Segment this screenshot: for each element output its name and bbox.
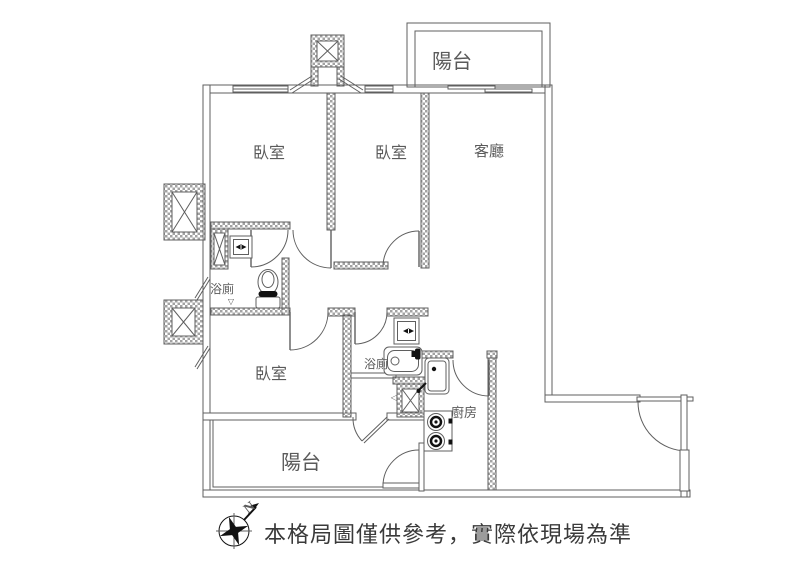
door-bedroom3 [290, 312, 328, 350]
shaft-bath1 [211, 229, 228, 269]
room-label-bedroom3: 臥室 [255, 365, 287, 383]
door-kitchen [453, 360, 489, 396]
drain-marker-bath1: ▽ [228, 297, 235, 306]
door-bath2 [355, 312, 387, 344]
door-balcony-kitchen [383, 450, 419, 488]
room-label-balcony-top: 陽台 [432, 50, 472, 73]
room-label-living: 客廳 [474, 142, 504, 160]
north-compass: N [216, 499, 259, 549]
room-label-bath2: 浴廁 [364, 356, 388, 371]
north-label: N [241, 499, 258, 517]
floor-plan-svg: 陽台 臥室 臥室 客廳 浴廁 臥室 浴廁 廚房 陽台 ▽ ◁ N 本格局圖僅供參… [0, 0, 800, 565]
top-balcony-railing [407, 23, 550, 87]
room-label-bedroom1: 臥室 [253, 144, 285, 162]
room-label-bath1: 浴廁 [210, 281, 234, 296]
door-balcony-hall [353, 417, 389, 443]
window-bedroom2 [365, 86, 393, 92]
vanity-bath1 [230, 236, 252, 258]
shaft-left-lower [164, 300, 203, 344]
shaft-top [311, 35, 344, 86]
door-bedroom1 [293, 230, 331, 268]
toilet [256, 270, 280, 309]
stove [424, 411, 453, 451]
window-bedroom1 [233, 86, 288, 92]
floor-plan-page: 陽台 臥室 臥室 客廳 浴廁 臥室 浴廁 廚房 陽台 ▽ ◁ N 本格局圖僅供參… [0, 0, 800, 565]
shaft-left-upper [164, 184, 205, 240]
vanity-bath2 [394, 318, 419, 344]
disclaimer-text: 本格局圖僅供參考，實際依現場為準 [264, 522, 632, 547]
room-label-kitchen: 廚房 [451, 405, 477, 420]
bathtub [384, 347, 422, 375]
room-label-balcony-bottom: 陽台 [281, 451, 321, 474]
vent-marker-shaft: ◁ [390, 393, 397, 402]
room-label-bedroom2: 臥室 [375, 144, 407, 162]
